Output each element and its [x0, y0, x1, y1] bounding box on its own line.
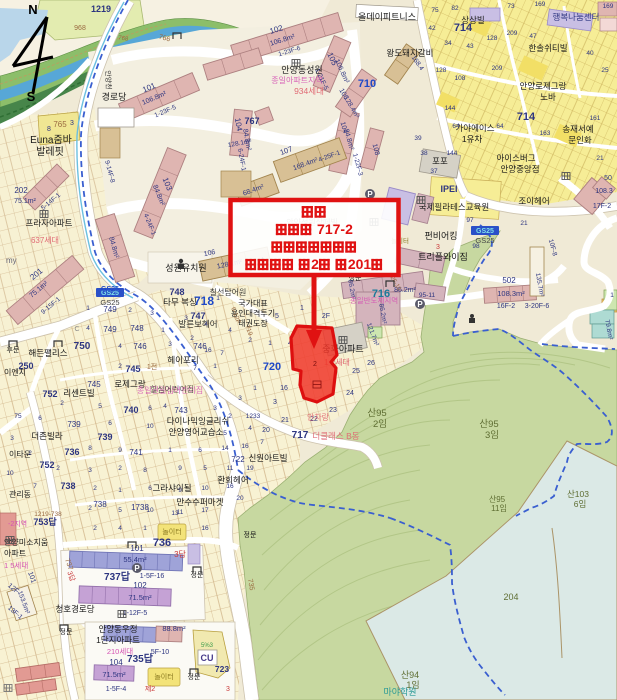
svg-text:16: 16 — [204, 347, 212, 354]
svg-text:722: 722 — [231, 455, 245, 464]
svg-text:GS25: GS25 — [101, 286, 119, 293]
svg-text:43: 43 — [466, 43, 474, 50]
svg-text:714: 714 — [517, 111, 536, 123]
svg-text:2: 2 — [118, 363, 122, 370]
svg-text:1 5세대: 1 5세대 — [4, 561, 28, 570]
svg-text:10: 10 — [146, 507, 154, 514]
svg-text:71.5m²: 71.5m² — [102, 670, 126, 679]
svg-text:16F-2: 16F-2 — [497, 303, 515, 310]
svg-text:8: 8 — [143, 467, 147, 474]
svg-text:767: 767 — [244, 116, 259, 126]
svg-text:95-11: 95-11 — [419, 292, 436, 299]
svg-text:75: 75 — [431, 7, 439, 14]
svg-text:740: 740 — [123, 405, 138, 415]
svg-text:3: 3 — [436, 244, 440, 251]
svg-text:P: P — [417, 300, 423, 309]
svg-text:C: C — [74, 326, 79, 333]
svg-text:1: 1 — [268, 340, 272, 347]
svg-text:739: 739 — [97, 432, 112, 442]
svg-text:97: 97 — [466, 217, 474, 224]
svg-text:21: 21 — [281, 417, 289, 424]
svg-text:1유차: 1유차 — [462, 134, 483, 144]
svg-text:후문: 후문 — [7, 346, 20, 354]
svg-text:10: 10 — [6, 470, 14, 477]
svg-text:GS25: GS25 — [475, 236, 494, 245]
svg-text:4: 4 — [118, 343, 122, 350]
svg-text:75.1m²: 75.1m² — [14, 198, 36, 205]
svg-text:24: 24 — [346, 390, 354, 397]
svg-text:82: 82 — [451, 5, 459, 12]
svg-text:산95: 산95 — [479, 419, 498, 430]
svg-text:108.3: 108.3 — [595, 188, 613, 195]
svg-text:8: 8 — [88, 445, 92, 452]
svg-text:40: 40 — [586, 50, 594, 57]
svg-text:이엔치: 이엔치 — [4, 367, 26, 377]
svg-text:1: 1 — [168, 447, 172, 454]
svg-text:태권도장: 태권도장 — [238, 318, 268, 328]
svg-text:3: 3 — [213, 405, 217, 412]
svg-text:50: 50 — [604, 175, 612, 182]
svg-text:그라샤이될: 그라샤이될 — [152, 483, 191, 493]
svg-text:717: 717 — [292, 430, 309, 441]
svg-text:4: 4 — [163, 403, 167, 410]
svg-text:-2지역: -2지역 — [8, 519, 27, 528]
svg-text:만수수퍼마겟: 만수수퍼마겟 — [177, 497, 224, 507]
svg-text:칠선탑어원: 칠선탑어원 — [210, 287, 247, 297]
svg-text:723: 723 — [215, 664, 229, 674]
svg-text:한솔쉬티빌: 한솔쉬티빌 — [528, 43, 567, 53]
svg-text:128: 128 — [436, 67, 447, 74]
svg-text:161: 161 — [590, 115, 601, 122]
svg-text:108.3m²: 108.3m² — [497, 289, 525, 298]
svg-text:2: 2 — [28, 450, 32, 457]
svg-text:안양로제그랑: 안양로제그랑 — [520, 81, 567, 91]
svg-text:169: 169 — [603, 3, 614, 10]
svg-text:25: 25 — [601, 67, 609, 74]
svg-text:7: 7 — [220, 350, 224, 357]
svg-text:1: 1 — [143, 525, 147, 532]
svg-text:128: 128 — [487, 35, 498, 42]
svg-text:101: 101 — [130, 544, 144, 553]
svg-text:Euna줌바: Euna줌바 — [30, 134, 72, 146]
svg-text:5: 5 — [203, 465, 207, 472]
svg-text:6: 6 — [108, 420, 112, 427]
svg-text:169: 169 — [535, 1, 546, 8]
svg-text:10: 10 — [146, 423, 154, 430]
svg-text:2: 2 — [56, 465, 60, 472]
svg-text:산95: 산95 — [489, 494, 506, 504]
svg-text:5F-10: 5F-10 — [151, 649, 169, 656]
svg-text:신원아트빌: 신원아트빌 — [248, 453, 287, 463]
svg-text:성원유치원: 성원유치원 — [165, 262, 206, 273]
svg-text:7: 7 — [33, 483, 37, 490]
svg-text:놀이터: 놀이터 — [154, 672, 173, 681]
svg-text:710: 710 — [358, 78, 376, 90]
svg-text:714: 714 — [454, 22, 473, 34]
svg-text:13: 13 — [171, 510, 179, 517]
svg-text:720: 720 — [263, 361, 281, 373]
svg-text:행복나눔센터: 행복나눔센터 — [553, 12, 600, 22]
svg-text:204: 204 — [503, 592, 518, 602]
svg-text:16: 16 — [226, 483, 234, 490]
svg-text:1: 1 — [118, 487, 122, 494]
svg-text:조이헤어: 조이헤어 — [518, 196, 549, 206]
svg-text:14: 14 — [221, 445, 229, 452]
svg-text:17F-2: 17F-2 — [593, 203, 611, 210]
svg-text:3답: 3답 — [174, 549, 186, 559]
svg-text:738: 738 — [60, 481, 75, 491]
svg-text:144: 144 — [447, 150, 458, 157]
svg-text:34: 34 — [444, 40, 452, 47]
svg-text:마야학원: 마야학원 — [383, 687, 416, 697]
svg-text:21: 21 — [596, 155, 604, 162]
svg-text:3: 3 — [226, 686, 230, 693]
svg-text:743: 743 — [174, 406, 188, 415]
svg-text:펀비어킹: 펀비어킹 — [424, 230, 457, 241]
svg-text:N: N — [28, 2, 37, 17]
svg-text:포포: 포포 — [432, 156, 448, 166]
svg-text:1: 1 — [213, 363, 217, 370]
svg-text:3임: 3임 — [485, 429, 499, 441]
svg-text:752: 752 — [42, 389, 57, 399]
svg-text:정문: 정문 — [244, 530, 257, 539]
svg-text:2: 2 — [228, 413, 232, 420]
svg-text:37: 37 — [430, 168, 438, 175]
svg-text:765: 765 — [53, 120, 67, 129]
svg-text:745: 745 — [125, 364, 140, 374]
svg-text:2: 2 — [311, 256, 319, 272]
svg-text:안차랑: 안차랑 — [307, 412, 330, 422]
svg-text:3: 3 — [10, 435, 14, 442]
svg-text:9: 9 — [178, 465, 182, 472]
svg-text:2임: 2임 — [373, 418, 387, 430]
svg-text:해든팰리스: 해든팰리스 — [28, 348, 67, 358]
svg-text:38: 38 — [420, 150, 428, 157]
svg-text:16: 16 — [280, 385, 288, 392]
svg-text:11: 11 — [227, 465, 234, 472]
svg-text:1: 1 — [86, 305, 90, 312]
svg-text:1-5F-16: 1-5F-16 — [140, 573, 165, 580]
svg-text:산103: 산103 — [567, 489, 589, 499]
svg-text:209: 209 — [492, 65, 503, 72]
svg-text:국가대표: 국가대표 — [238, 299, 267, 308]
svg-text:5: 5 — [238, 367, 242, 374]
svg-text:64: 64 — [496, 123, 504, 130]
svg-text:735답: 735답 — [127, 653, 154, 665]
svg-text:아파트: 아파트 — [4, 548, 26, 558]
svg-text:749: 749 — [103, 325, 117, 334]
svg-text:11임: 11임 — [491, 504, 507, 513]
svg-text:더존빌라: 더존빌라 — [31, 431, 62, 441]
svg-text:국제필라테스교육원: 국제필라테스교육원 — [419, 202, 489, 212]
svg-text:경로당: 경로당 — [102, 91, 127, 102]
svg-text:102: 102 — [133, 581, 147, 590]
svg-text:17: 17 — [201, 507, 209, 514]
svg-text:739: 739 — [67, 420, 81, 429]
svg-text:산95: 산95 — [367, 408, 386, 419]
svg-text:6: 6 — [38, 415, 42, 422]
svg-text:4: 4 — [118, 525, 122, 532]
svg-text:748: 748 — [169, 287, 184, 297]
svg-text:10: 10 — [201, 485, 209, 492]
svg-text:2: 2 — [128, 307, 132, 314]
svg-text:왕도돼지갈비: 왕도돼지갈비 — [387, 48, 434, 58]
svg-text:64: 64 — [452, 123, 460, 130]
svg-text:안양영어교습소: 안양영어교습소 — [169, 427, 224, 437]
svg-text:5: 5 — [118, 507, 122, 514]
svg-text:3: 3 — [273, 399, 277, 406]
svg-text:2: 2 — [118, 465, 122, 472]
svg-text:노바: 노바 — [540, 92, 556, 102]
svg-text:안양동우정: 안양동우정 — [98, 624, 137, 634]
svg-text:종일반도체지역: 종일반도체지역 — [350, 295, 398, 305]
svg-text:3: 3 — [168, 341, 172, 348]
svg-text:1: 1 — [216, 295, 220, 302]
svg-text:737답: 737답 — [104, 571, 131, 583]
svg-text:관리동: 관리동 — [9, 489, 31, 499]
svg-text:752: 752 — [39, 460, 54, 470]
svg-text:75: 75 — [14, 413, 22, 420]
svg-text:4: 4 — [204, 321, 208, 328]
svg-text:753답: 753답 — [33, 516, 57, 527]
svg-text:5: 5 — [98, 403, 102, 410]
svg-text:4: 4 — [86, 325, 90, 332]
svg-text:748: 748 — [130, 324, 144, 333]
svg-text:1233: 1233 — [246, 413, 261, 420]
svg-text:2: 2 — [313, 361, 317, 368]
svg-text:아이스버그: 아이스버그 — [496, 153, 535, 163]
svg-text:16: 16 — [201, 525, 209, 532]
svg-text:올데이피트니스: 올데이피트니스 — [358, 12, 416, 22]
svg-text:736: 736 — [153, 537, 171, 549]
svg-text:144: 144 — [445, 105, 456, 112]
svg-text:6임: 6임 — [574, 499, 587, 509]
svg-text:3: 3 — [88, 467, 92, 474]
svg-text:5: 5 — [275, 313, 279, 320]
svg-text:1: 1 — [300, 305, 304, 312]
svg-text:2: 2 — [248, 337, 252, 344]
svg-text:934세대: 934세대 — [294, 86, 324, 96]
svg-text:다이나믹잉글리쉬: 다이나믹잉글리쉬 — [167, 416, 230, 426]
svg-text:S: S — [27, 89, 36, 104]
svg-text:안양미소지움: 안양미소지움 — [4, 537, 48, 547]
svg-text:헤이포리: 헤이포리 — [167, 355, 198, 365]
svg-text:736: 736 — [64, 447, 79, 457]
svg-text:42: 42 — [428, 25, 436, 32]
svg-text:1: 1 — [161, 327, 165, 334]
svg-text:209: 209 — [507, 30, 518, 37]
svg-text:9: 9 — [118, 447, 122, 454]
svg-text:5%3: 5%3 — [201, 643, 214, 649]
svg-text:1: 1 — [253, 385, 257, 392]
svg-text:종일아파트지역: 종일아파트지역 — [271, 75, 323, 85]
svg-text:746: 746 — [133, 342, 147, 351]
svg-text:2: 2 — [88, 505, 92, 512]
svg-text:3: 3 — [150, 310, 154, 317]
svg-text:25: 25 — [352, 368, 360, 375]
svg-text:108: 108 — [455, 75, 466, 82]
svg-text:7: 7 — [260, 439, 264, 446]
svg-text:문인화: 문인화 — [568, 135, 592, 145]
svg-text:1: 1 — [610, 292, 614, 299]
svg-text:산94: 산94 — [401, 670, 419, 680]
svg-text:my: my — [6, 256, 17, 265]
svg-text:송재서예: 송재서예 — [562, 124, 593, 134]
svg-text:타무 복싱: 타무 복싱 — [163, 297, 197, 307]
svg-text:7: 7 — [193, 365, 197, 372]
svg-text:47: 47 — [529, 33, 537, 40]
svg-text:73: 73 — [507, 3, 515, 10]
svg-text:5: 5 — [223, 430, 227, 437]
svg-text:GS25: GS25 — [476, 228, 494, 235]
svg-text:CU: CU — [201, 653, 214, 663]
svg-text:202: 202 — [14, 186, 28, 195]
svg-text:6: 6 — [198, 447, 202, 454]
svg-text:23: 23 — [329, 407, 337, 414]
svg-text:프라자아파트: 프라자아파트 — [26, 218, 73, 228]
svg-text:트리플와이짐: 트리플와이짐 — [418, 251, 468, 262]
svg-text:정문: 정문 — [60, 627, 73, 636]
svg-text:1-5F-4: 1-5F-4 — [106, 686, 127, 693]
svg-text:3-20F-6: 3-20F-6 — [525, 303, 550, 310]
svg-text:1전: 1전 — [147, 362, 157, 371]
svg-text:3: 3 — [184, 315, 188, 322]
svg-text:4: 4 — [228, 327, 232, 334]
svg-text:717-2: 717-2 — [317, 221, 353, 237]
svg-text:리센트빌: 리센트빌 — [63, 388, 94, 398]
svg-text:IPEI: IPEI — [440, 184, 457, 194]
svg-text:39: 39 — [414, 135, 422, 142]
svg-text:20: 20 — [262, 427, 270, 434]
svg-text:16: 16 — [241, 443, 249, 450]
svg-text:발레핏: 발레핏 — [36, 146, 64, 158]
svg-text:8: 8 — [47, 126, 51, 133]
svg-text:6: 6 — [148, 485, 152, 492]
svg-text:163: 163 — [540, 130, 551, 137]
svg-text:9: 9 — [178, 487, 182, 494]
svg-text:힐심어린이집: 힐심어린이집 — [150, 384, 194, 394]
svg-text:제2: 제2 — [145, 685, 155, 693]
svg-text:놀이터: 놀이터 — [162, 527, 181, 536]
svg-text:637세대: 637세대 — [31, 236, 59, 245]
svg-text:P: P — [367, 190, 373, 199]
svg-text:안양중앙점: 안양중앙점 — [500, 164, 539, 174]
svg-text:4: 4 — [248, 425, 252, 432]
svg-text:6: 6 — [148, 405, 152, 412]
svg-text:88.8m²: 88.8m² — [162, 624, 186, 633]
svg-text:2: 2 — [93, 485, 97, 492]
svg-text:19: 19 — [246, 465, 254, 472]
svg-text:3: 3 — [70, 120, 74, 127]
svg-text:104: 104 — [109, 658, 123, 667]
svg-text:가야에이스: 가야에이스 — [455, 123, 494, 133]
svg-text:2: 2 — [190, 335, 194, 342]
svg-text:3: 3 — [238, 395, 242, 402]
svg-text:71.5m²: 71.5m² — [128, 593, 152, 602]
svg-text:2: 2 — [93, 525, 97, 532]
svg-text:20: 20 — [236, 495, 244, 502]
svg-text:더클래스 B동: 더클래스 B동 — [312, 431, 359, 441]
svg-text:738: 738 — [93, 500, 107, 509]
svg-text:968: 968 — [74, 25, 86, 32]
svg-text:502: 502 — [502, 276, 516, 285]
svg-text:55.4m²: 55.4m² — [123, 555, 147, 564]
svg-text:201: 201 — [348, 256, 372, 272]
svg-text:1단지아파트: 1단지아파트 — [96, 635, 140, 645]
svg-text:P: P — [134, 564, 140, 573]
svg-text:청호경로당: 청호경로당 — [55, 604, 94, 614]
svg-text:749: 749 — [103, 305, 117, 314]
svg-text:1219: 1219 — [91, 4, 111, 14]
svg-text:750: 750 — [74, 341, 91, 352]
svg-text:26: 26 — [367, 360, 375, 367]
svg-text:2: 2 — [60, 400, 64, 407]
svg-text:21: 21 — [520, 220, 528, 227]
svg-text:741: 741 — [129, 448, 143, 457]
svg-text:2F: 2F — [322, 313, 330, 320]
